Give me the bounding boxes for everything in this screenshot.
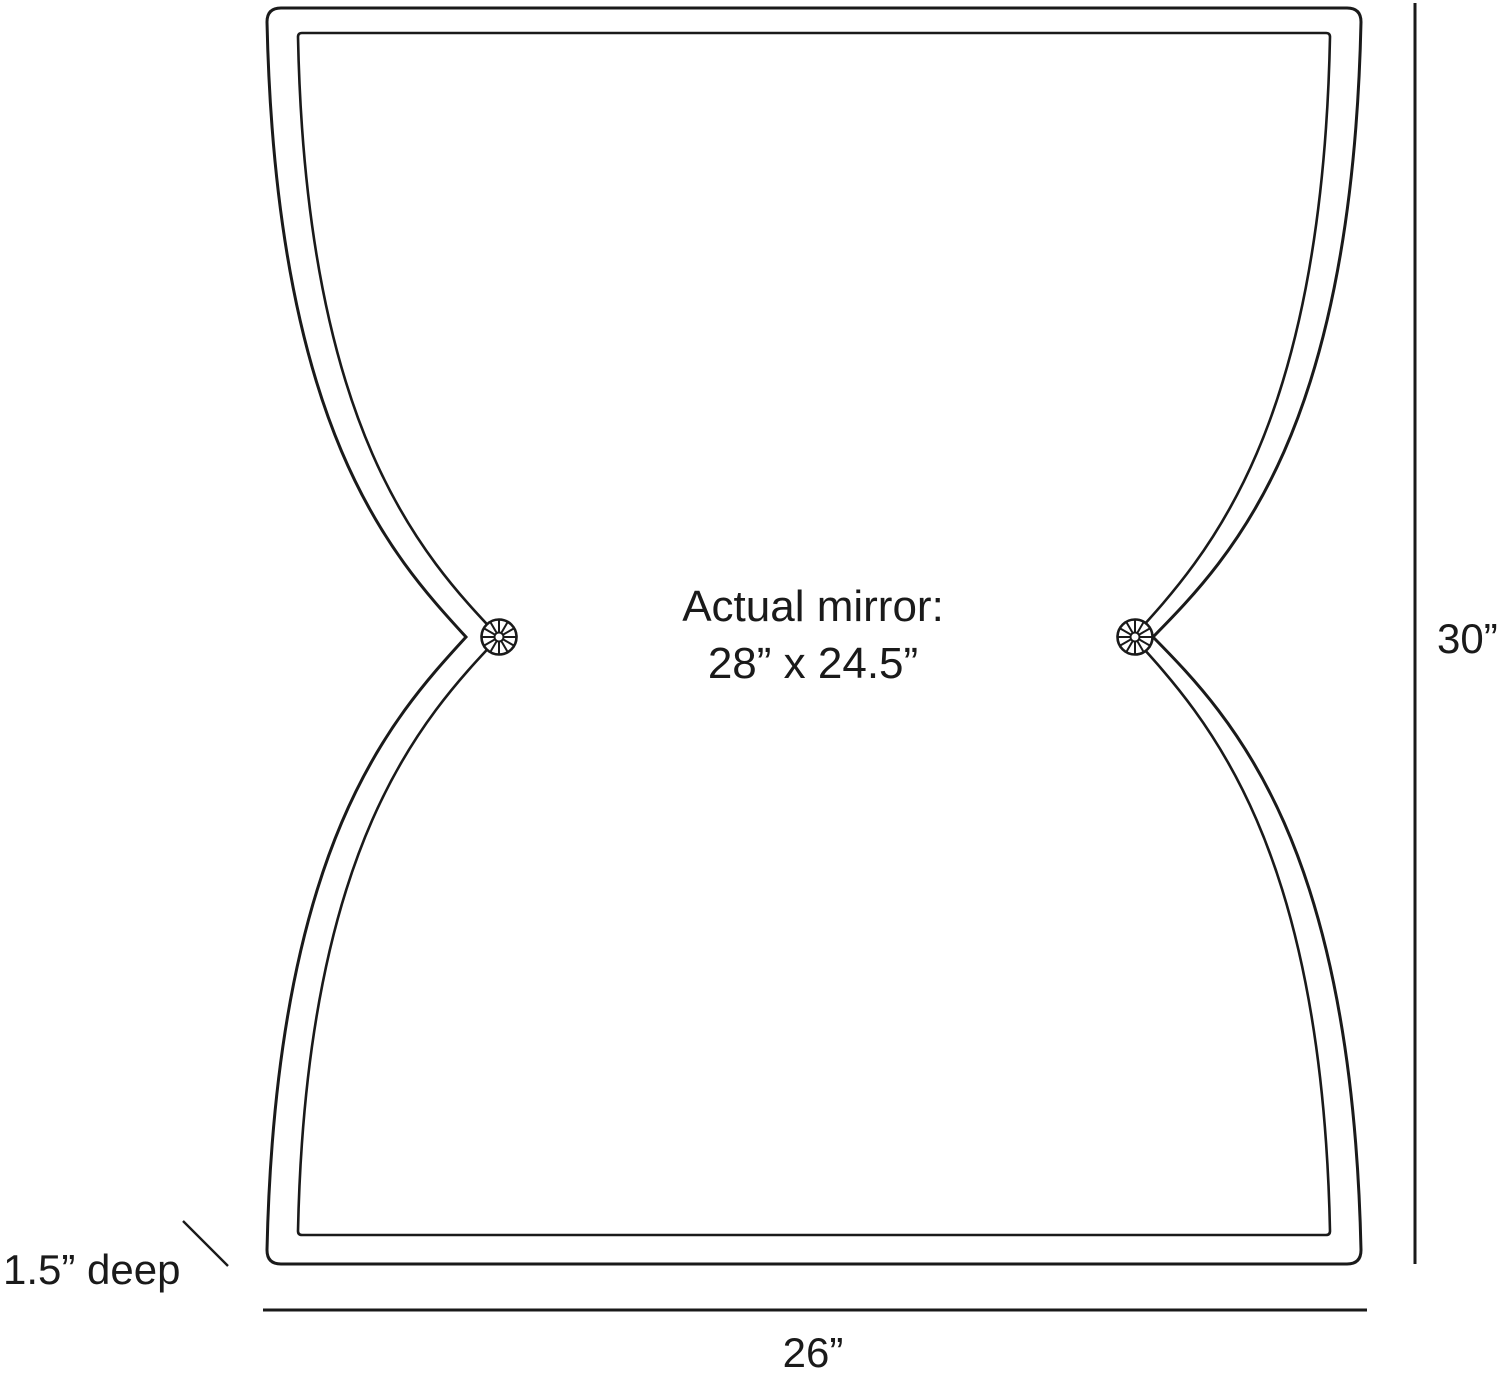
mirror-inner-outline [298, 33, 1330, 1235]
mirror-size-label-line1: Actual mirror: [682, 582, 944, 631]
depth-label: 1.5” deep [3, 1246, 180, 1293]
width-label: 26” [783, 1329, 844, 1376]
depth-leader-line [183, 1221, 228, 1266]
mirror-size-label-line2: 28” x 24.5” [708, 639, 918, 688]
mirror-outer-outline [267, 8, 1361, 1264]
rosette-icon [1118, 620, 1153, 655]
mirror-dimension-diagram: Actual mirror: 28” x 24.5” 30” 26” 1.5” … [0, 0, 1500, 1378]
height-label: 30” [1437, 615, 1498, 662]
rosette-icon [482, 620, 517, 655]
mirror-diagram-canvas: Actual mirror: 28” x 24.5” 30” 26” 1.5” … [0, 0, 1500, 1378]
